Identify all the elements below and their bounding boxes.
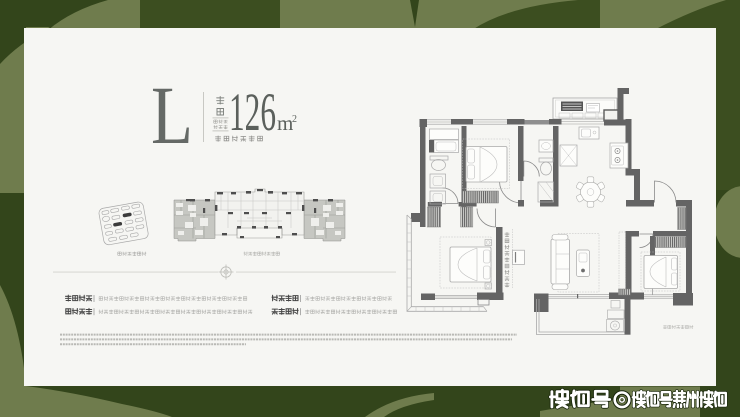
svg-text:2: 2 <box>292 114 297 125</box>
svg-text:126: 126 <box>229 82 276 142</box>
svg-text:m: m <box>277 111 293 135</box>
svg-text:L: L <box>151 69 193 161</box>
